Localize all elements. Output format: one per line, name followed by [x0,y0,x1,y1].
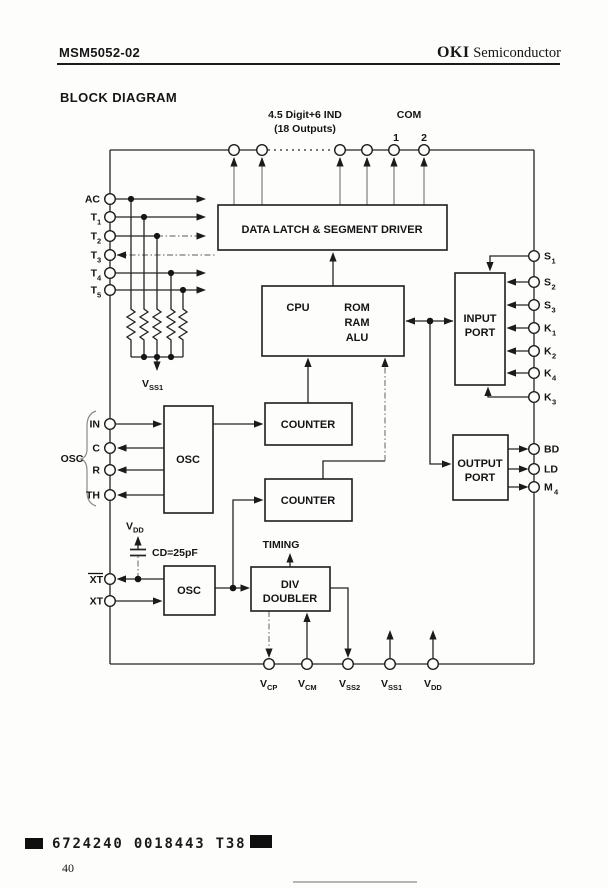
pad-c [105,443,116,454]
pad-vcp [264,659,275,670]
pin-label-k1: K [544,323,552,335]
pin-label-s2-sub: 2 [552,283,556,292]
output-port-label-1: OUTPUT [457,458,503,470]
cap-value-label: CD=25pF [152,547,198,559]
scan-artifact-line [293,881,417,883]
pin-label-t2-sub: 2 [97,237,101,246]
pin-label-t4-sub: 4 [97,274,102,283]
pin-label-vss2-sub: SS2 [346,683,360,692]
pin-label-th: TH [86,490,100,502]
pad-xt [105,596,116,607]
resistor-network [127,199,187,363]
counter1-label: COUNTER [281,419,335,431]
block-diagram: DATA LATCH & SEGMENT DRIVER CPU ROM RAM … [0,0,608,889]
pad-k1 [529,323,540,334]
pad-vdd [428,659,439,670]
div-label-1: DIV [281,579,300,591]
counter2-label: COUNTER [281,495,335,507]
pin-label-t3-sub: 3 [97,256,101,265]
vss1-res-label: V [142,378,149,390]
pad-s3 [529,300,540,311]
cpu-label: CPU [286,302,309,314]
footer-bar-right [250,835,272,848]
pad-k4 [529,368,540,379]
pin-label-s1: S [544,251,551,263]
pad-seg-1 [229,145,240,156]
vss1-res-label-sub: SS1 [149,383,163,392]
footer-code: 6724240 0018443 T38 [52,836,246,852]
resistor [127,199,135,357]
com2-number: 2 [421,132,427,144]
pad-seg-2 [257,145,268,156]
pin-label-k4-sub: 4 [552,374,557,383]
pin-label-ld: LD [544,464,558,476]
pad-xtb [105,574,116,585]
resistor [140,217,148,357]
pin-label-k1-sub: 1 [552,329,556,338]
pad-s1 [529,251,540,262]
osc1-label: OSC [176,454,200,466]
pad-t3 [105,250,116,261]
pin-label-t1-sub: 1 [97,218,101,227]
pin-label-vcp-sub: CP [267,683,277,692]
digit-outputs-label-2: (18 Outputs) [274,123,336,135]
pin-label-vdd: V [424,678,431,690]
pin-label-t5-sub: 5 [97,291,101,300]
junction-dots [128,196,433,591]
pad-t4 [105,268,116,279]
pad-t2 [105,231,116,242]
pin-label-in: IN [90,419,101,431]
vdd-cap-label-sub: DD [133,526,144,535]
pin-label-vss2: V [339,678,346,690]
pad-com2 [419,145,430,156]
pin-label-s3: S [544,300,551,312]
com-label: COM [397,109,422,121]
alu-label: ALU [346,332,369,344]
pin-label-c: C [92,443,100,455]
cpu-port-bus [406,321,453,464]
cpu-block [262,286,404,356]
pin-label-vss1-sub: SS1 [388,683,402,692]
osc2-label: OSC [177,585,201,597]
datasheet-page: MSM5052-02 OKI Semiconductor BLOCK DIAGR… [0,0,608,889]
digit-outputs-label-1: 4.5 Digit+6 IND [268,109,342,121]
pin-label-k2-sub: 2 [552,352,556,361]
input-port-label-2: PORT [465,327,496,339]
pin-label-bd: BD [544,444,560,456]
pad-vcm [302,659,313,670]
pin-label-k4: K [544,368,552,380]
pin-label-vcm-sub: CM [305,683,317,692]
pad-k2 [529,346,540,357]
pad-th [105,490,116,501]
pin-label-vcm: V [298,678,305,690]
pin-label-k3-sub: 3 [552,398,556,407]
pad-com1 [389,145,400,156]
pin-label-vcp: V [260,678,267,690]
div-label-2: DOUBLER [263,593,317,605]
com1-number: 1 [393,132,399,144]
pin-label-k2: K [544,346,552,358]
vdd-cap-label: V [126,521,133,533]
resistor [179,290,187,357]
ram-label: RAM [344,317,369,329]
pin-label-m4: M [544,482,553,494]
pin-label-vdd-sub: DD [431,683,442,692]
capacitor-assembly [130,542,146,579]
pin-label-s2: S [544,277,551,289]
rom-label: ROM [344,302,370,314]
page-number: 40 [62,861,74,876]
pad-m4 [529,482,540,493]
footer-bar-left [25,838,43,849]
pin-label-s3-sub: 3 [552,306,556,315]
pad-vss1 [385,659,396,670]
pin-label-xt-bar: XT [90,574,104,586]
pad-k3 [529,392,540,403]
output-port-label-2: PORT [465,472,496,484]
pad-t1 [105,212,116,223]
pad-seg-18 [362,145,373,156]
pad-vss2 [343,659,354,670]
pad-bd [529,444,540,455]
timing-label: TIMING [263,539,300,551]
pad-in [105,419,116,430]
data-latch-label: DATA LATCH & SEGMENT DRIVER [241,224,422,236]
pad-ac [105,194,116,205]
capacitor [130,550,146,556]
osc-group-label: OSC [61,453,84,465]
pad-ld [529,464,540,475]
pad-t5 [105,285,116,296]
pin-label-k3: K [544,392,552,404]
pin-label-xt: XT [90,596,104,608]
resistor [167,273,175,357]
pin-label-m4-sub: 4 [554,488,559,497]
pin-label-r: R [92,465,100,477]
pad-r [105,465,116,476]
pad-seg-17 [335,145,346,156]
pin-label-s1-sub: 1 [552,257,556,266]
input-port-label-1: INPUT [464,313,497,325]
pin-label-ac: AC [85,194,101,206]
pin-label-vss1: V [381,678,388,690]
pad-s2 [529,277,540,288]
resistor [153,236,161,357]
